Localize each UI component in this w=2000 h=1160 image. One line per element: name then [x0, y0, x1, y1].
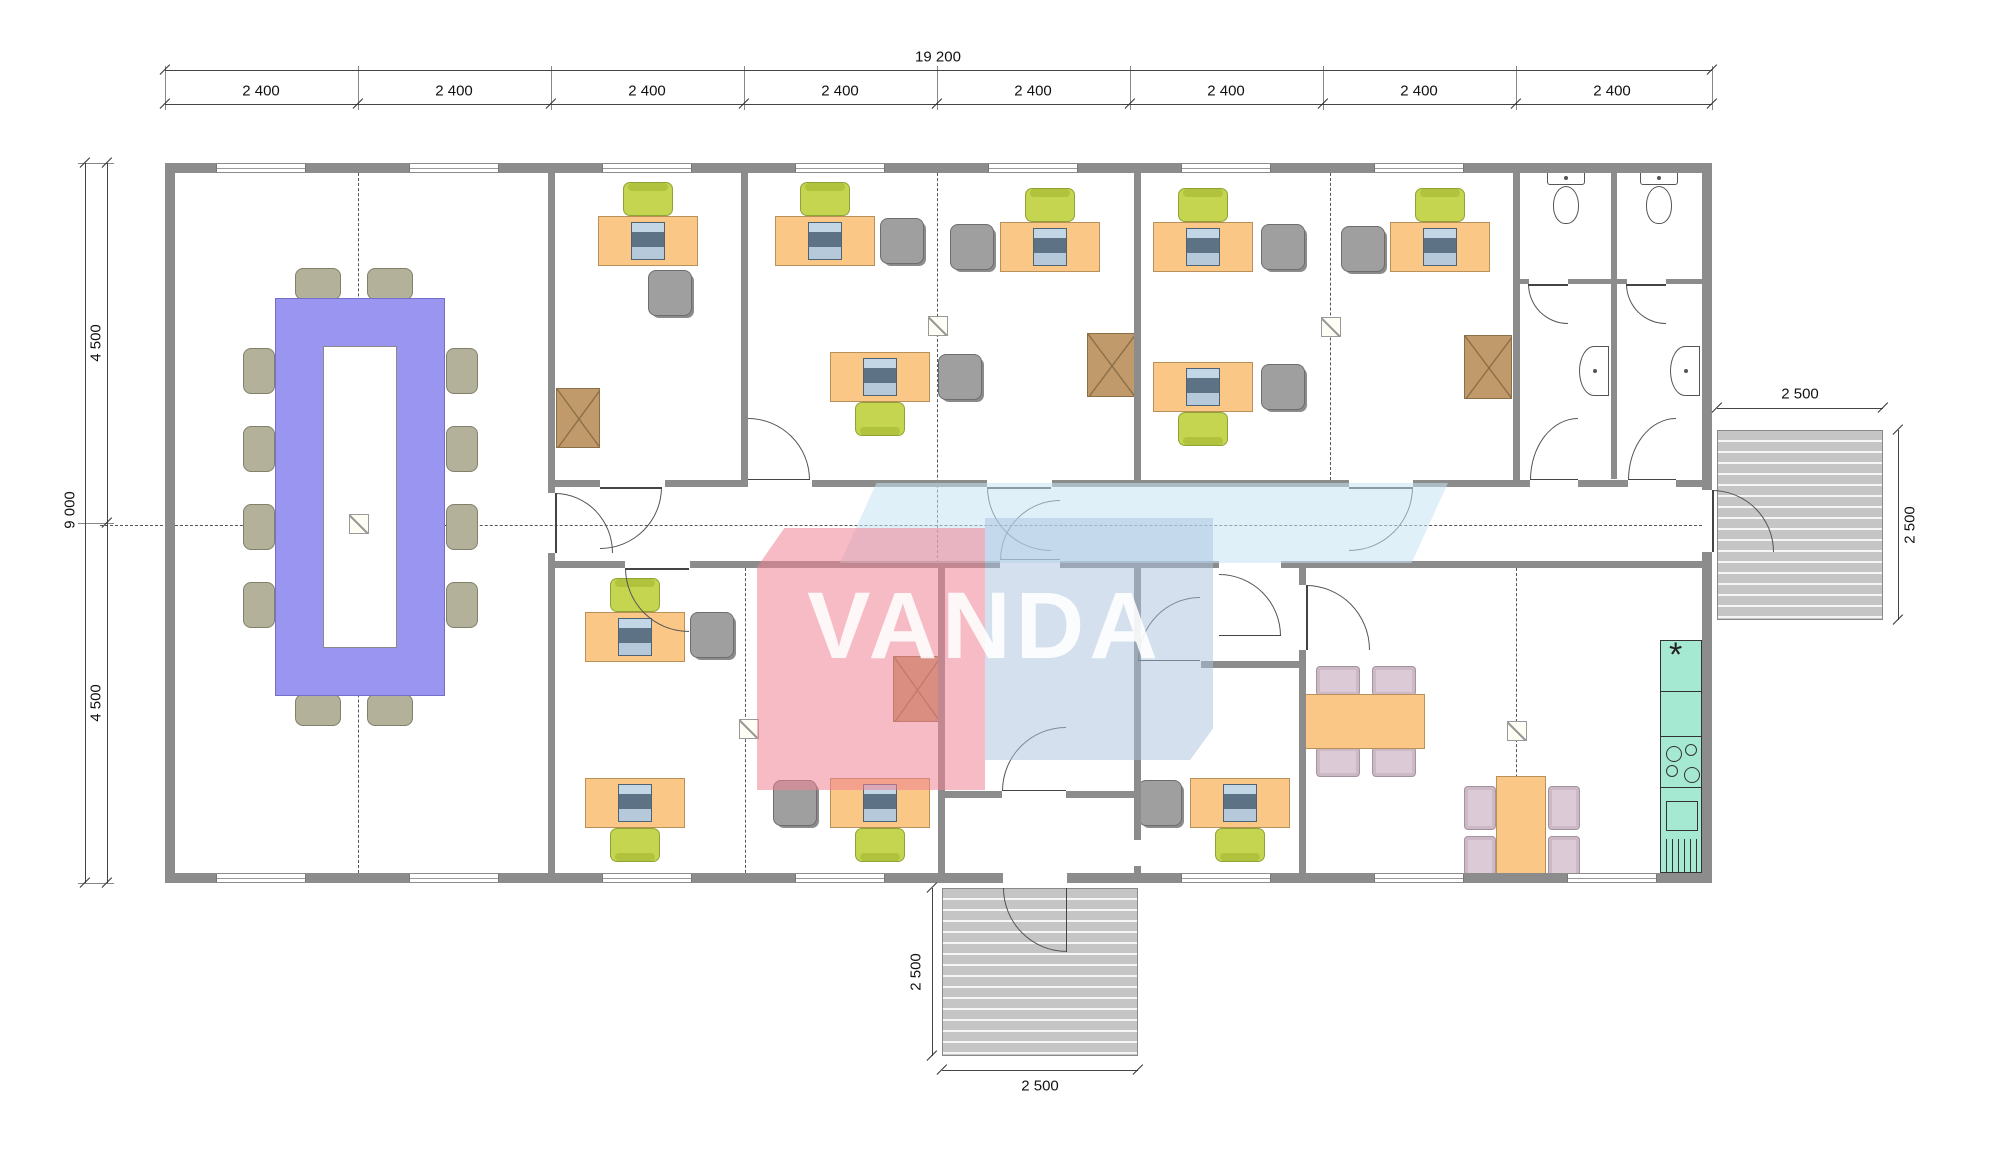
door-swing-arc: [1530, 418, 1578, 480]
computer-icon: [1423, 228, 1457, 266]
wall: [165, 163, 175, 883]
floor-plan: *19 2002 4002 4002 4002 4002 4002 4002 4…: [0, 0, 2000, 1160]
task-chair: [1215, 828, 1265, 862]
window: [1374, 874, 1464, 882]
task-chair: [610, 828, 660, 862]
guest-chair: [1138, 780, 1182, 826]
computer-icon: [863, 784, 897, 822]
door-swing-arc: [1002, 727, 1066, 791]
dim-half-depth: 4 500: [88, 324, 105, 362]
dining-chair: [1372, 666, 1416, 696]
toilet-flush-dot: [1657, 176, 1661, 180]
window: [602, 164, 692, 172]
computer-icon: [1186, 368, 1220, 406]
wall: [1413, 480, 1530, 487]
dining-chair: [1316, 666, 1360, 696]
door-swing-arc: [1626, 284, 1666, 324]
wall: [555, 561, 625, 568]
conference-chair: [243, 348, 275, 394]
dim-total-width: 19 200: [915, 49, 961, 66]
door-leaf: [1002, 790, 1066, 792]
conference-chair: [243, 582, 275, 628]
dim-module: 2 400: [435, 83, 473, 100]
window: [409, 164, 499, 172]
wall: [665, 480, 748, 487]
guest-chair: [1261, 364, 1305, 410]
dimension-line: [932, 888, 933, 1056]
wall: [1134, 866, 1141, 883]
kitchen-sink-icon: [1666, 801, 1698, 831]
drainer-icon: [1666, 839, 1698, 873]
task-chair: [1415, 188, 1465, 222]
wall: [938, 568, 945, 883]
conference-chair: [367, 268, 413, 300]
door-swing-arc: [1349, 487, 1413, 551]
dim-module: 2 400: [242, 83, 280, 100]
stove-burner-icon: [1685, 744, 1697, 756]
grid-marker-icon: [928, 316, 948, 336]
door-swing-arc: [1138, 597, 1200, 661]
conference-chair: [295, 694, 341, 726]
door-swing-arc: [1628, 418, 1676, 480]
dim-half-depth: 4 500: [88, 684, 105, 722]
freezer-star-icon: *: [1669, 645, 1682, 665]
wall: [1052, 480, 1349, 487]
conference-chair: [295, 268, 341, 300]
dining-chair: [1316, 747, 1360, 777]
window: [795, 874, 885, 882]
door-leaf: [1626, 284, 1666, 286]
guest-chair: [1261, 224, 1305, 270]
conference-chair: [243, 426, 275, 472]
task-chair: [1178, 412, 1228, 446]
conference-chair: [446, 426, 478, 472]
wall: [690, 561, 1000, 568]
wall: [1066, 791, 1134, 798]
task-chair: [855, 828, 905, 862]
toilet-flush-dot: [1564, 176, 1568, 180]
door-leaf: [1219, 635, 1281, 637]
door-leaf: [748, 479, 810, 481]
door-opening: [1003, 873, 1067, 883]
door-leaf: [1528, 284, 1568, 286]
wall: [548, 163, 555, 493]
task-chair: [1025, 188, 1075, 222]
computer-icon: [618, 784, 652, 822]
dimension-line: [165, 70, 1712, 71]
dining-table: [1303, 694, 1425, 749]
dining-chair: [1464, 786, 1496, 830]
door-leaf: [1000, 559, 1060, 561]
task-chair: [800, 182, 850, 216]
wall: [1134, 163, 1141, 480]
dim-total-depth: 9 000: [62, 491, 79, 529]
wall: [945, 791, 1002, 798]
window: [988, 164, 1078, 172]
task-chair: [1178, 188, 1228, 222]
wall: [1201, 661, 1299, 668]
door-leaf: [1138, 660, 1200, 662]
door-leaf: [1306, 585, 1308, 650]
guest-chair: [880, 218, 924, 264]
wall: [741, 163, 748, 480]
kitchen-divider: [1661, 736, 1701, 737]
door-leaf: [1712, 490, 1714, 552]
kitchen-divider: [1661, 691, 1701, 692]
wall: [1060, 561, 1219, 568]
dimension-line: [1898, 430, 1899, 620]
dimension-line: [1717, 408, 1883, 409]
computer-icon: [1033, 228, 1067, 266]
storage-cabinet-x: [893, 656, 940, 722]
computer-icon: [863, 358, 897, 396]
wall: [555, 480, 600, 487]
door-swing-arc: [1306, 585, 1370, 650]
door-leaf: [1628, 479, 1676, 481]
dim-module: 2 400: [1593, 83, 1631, 100]
wall: [1676, 480, 1712, 487]
stove-burner-icon: [1666, 765, 1678, 777]
wall: [548, 553, 555, 883]
extension-line: [78, 523, 114, 524]
dining-table: [1496, 776, 1546, 880]
task-chair: [623, 182, 673, 216]
computer-icon: [631, 222, 665, 260]
wall: [1568, 279, 1611, 284]
toilet-icon: [1646, 186, 1672, 224]
computer-icon: [808, 222, 842, 260]
conference-chair: [446, 582, 478, 628]
stove-burner-icon: [1684, 767, 1700, 783]
dimension-line: [942, 1070, 1138, 1071]
door-swing-arc: [748, 418, 810, 480]
dining-chair: [1372, 747, 1416, 777]
wall: [1281, 561, 1712, 568]
door-leaf: [987, 487, 1051, 489]
dim-bottom-porch: 2 500: [1021, 1078, 1059, 1095]
dimension-line: [85, 163, 86, 883]
toilet-icon: [1553, 186, 1579, 224]
dim-bottom-porch: 2 500: [908, 953, 925, 991]
guest-chair: [938, 354, 982, 400]
storage-cabinet-x: [1087, 333, 1135, 397]
window: [216, 164, 306, 172]
wall: [1134, 568, 1141, 840]
window: [602, 874, 692, 882]
conference-chair: [367, 694, 413, 726]
kitchen-counter: *: [1660, 640, 1702, 873]
door-leaf: [600, 487, 662, 489]
wall: [165, 163, 1712, 173]
door-opening: [1702, 490, 1712, 552]
window: [1181, 164, 1271, 172]
dimension-line: [165, 104, 1712, 105]
door-swing-arc: [600, 487, 662, 549]
guest-chair: [690, 612, 734, 658]
wall: [1666, 279, 1711, 284]
wall: [1299, 650, 1306, 883]
dim-right-porch: 2 500: [1781, 386, 1819, 403]
washbasin-drain-dot: [1684, 369, 1688, 373]
stove-burner-icon: [1666, 746, 1682, 762]
grid-marker-icon: [1321, 317, 1341, 337]
task-chair: [855, 402, 905, 436]
computer-icon: [618, 618, 652, 656]
kitchen-divider: [1661, 787, 1701, 788]
window: [795, 164, 885, 172]
window: [216, 874, 306, 882]
conference-table-opening: [323, 346, 397, 648]
dim-module: 2 400: [1400, 83, 1438, 100]
guest-chair: [950, 224, 994, 270]
guest-chair: [648, 270, 692, 316]
wall: [1513, 163, 1520, 480]
door-leaf: [1349, 487, 1413, 489]
window: [1374, 164, 1464, 172]
guest-chair: [773, 780, 817, 826]
wall: [812, 480, 987, 487]
door-leaf: [1530, 479, 1578, 481]
washbasin-drain-dot: [1593, 369, 1597, 373]
storage-cabinet-x: [1464, 335, 1512, 399]
door-swing-arc: [1219, 574, 1281, 636]
storage-cabinet-x: [556, 388, 600, 448]
window: [409, 874, 499, 882]
window: [1181, 874, 1271, 882]
grid-marker-icon: [739, 719, 759, 739]
conference-chair: [446, 348, 478, 394]
wall: [1611, 163, 1617, 479]
computer-icon: [1223, 784, 1257, 822]
door-leaf: [1066, 888, 1068, 952]
door-leaf: [555, 493, 557, 553]
dim-module: 2 400: [821, 83, 859, 100]
door-leaf: [625, 568, 689, 570]
wall: [1578, 480, 1628, 487]
computer-icon: [1186, 228, 1220, 266]
conference-chair: [243, 504, 275, 550]
door-swing-arc: [1528, 284, 1568, 324]
dining-chair: [1548, 786, 1580, 830]
dim-module: 2 400: [628, 83, 666, 100]
guest-chair: [1341, 226, 1385, 272]
window: [1567, 874, 1657, 882]
grid-marker-icon: [1507, 721, 1527, 741]
wall: [1299, 568, 1306, 585]
grid-marker-icon: [349, 514, 369, 534]
dim-right-porch: 2 500: [1902, 506, 1919, 544]
dim-module: 2 400: [1014, 83, 1052, 100]
conference-chair: [446, 504, 478, 550]
dim-module: 2 400: [1207, 83, 1245, 100]
